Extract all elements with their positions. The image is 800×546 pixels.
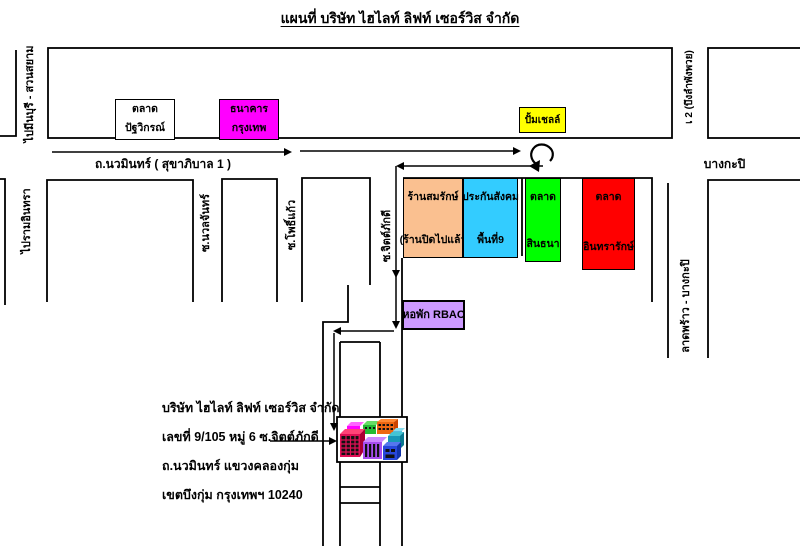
landmark-label: ประกันสังคม xyxy=(462,191,519,205)
street-label-to-minburi: ไปมีนบุรี - สวนสยาม xyxy=(23,14,37,174)
landmark-label: ปั้มเชลล์ xyxy=(525,114,560,127)
landmark-box-rbac-dorm: หอพัก RBAC xyxy=(402,300,465,330)
landmark-label: ร้านสมรักษ์ xyxy=(408,191,459,205)
company-address-line: เลขที่ 9/105 หมู่ 6 ซ.จิตต์ภักดี xyxy=(162,427,340,447)
landmark-box-bangkok-bank: ธนาคาร กรุงเทพ xyxy=(219,99,279,140)
landmark-box-social-security: ประกันสังคม พื้นที่9 xyxy=(463,178,518,258)
landmark-box-inthararak-market: ตลาด อินทรารักษ์ xyxy=(582,178,635,270)
landmark-label: พื้นที่9 xyxy=(477,234,504,248)
company-building-icon xyxy=(340,419,405,460)
landmark-box-shell-station: ปั้มเชลล์ xyxy=(519,107,566,133)
street-label-bueng-lam-phang-phuai: เ 2 (บึงลำพังพวย) xyxy=(683,17,697,157)
landmark-label: สินธนา xyxy=(526,238,559,252)
street-label-soi-phokaeo: ซ.โพธิ์แก้ว xyxy=(285,175,299,275)
landmark-label: หอพัก RBAC xyxy=(402,308,465,322)
company-name: บริษัท ไฮไลท์ ลิฟท์ เซอร์วิส จำกัด xyxy=(162,398,340,418)
street-label-to-ramintra: ไปรามอินทรา xyxy=(20,161,34,281)
landmark-label: กรุงเทพ xyxy=(232,122,267,136)
street-label-soi-chitphakdi: ซ.จิตต์ภักดี xyxy=(380,181,394,291)
u-turn-icon xyxy=(529,145,553,173)
landmark-label: ปัฐวิกรณ์ xyxy=(125,122,165,136)
company-address-line: เขตบึงกุ่ม กรุงเทพฯ 10240 xyxy=(162,485,340,505)
landmark-label: (ร้านปิดไปแล้ว xyxy=(400,234,467,248)
landmark-label: ตลาด xyxy=(596,191,622,205)
company-address-line: ถ.นวมินทร์ แขวงคลองกุ่ม xyxy=(162,456,340,476)
road-label-nawamin: ถ.นวมินทร์ ( สุขาภิบาล 1 ) xyxy=(58,155,268,174)
map-canvas: แผนที่ บริษัท ไฮไลท์ ลิฟท์ เซอร์วิส จำกั… xyxy=(0,0,800,546)
street-label-latphrao-bangkapi: ลาดพร้าว - บางกะปิ xyxy=(679,236,693,376)
page-title: แผนที่ บริษัท ไฮไลท์ ลิฟท์ เซอร์วิส จำกั… xyxy=(0,8,800,30)
landmark-label: ตลาด xyxy=(132,103,158,117)
street-label-soi-nuanchan: ซ.นวลจันทร์ xyxy=(199,173,213,273)
landmark-box-patwikon-market: ตลาด ปัฐวิกรณ์ xyxy=(115,99,175,140)
landmark-label: ตลาด xyxy=(530,191,556,205)
landmark-label: ธนาคาร xyxy=(230,103,268,117)
landmark-box-sinthana-market: ตลาด สินธนา xyxy=(525,178,561,262)
landmark-label: อินทรารักษ์ xyxy=(583,241,634,255)
company-address: บริษัท ไฮไลท์ ลิฟท์ เซอร์วิส จำกัด เลขที… xyxy=(162,398,340,514)
road-label-bangkapi: บางกะปิ xyxy=(692,155,757,174)
landmark-box-somrak-shop: ร้านสมรักษ์ (ร้านปิดไปแล้ว xyxy=(403,178,463,258)
